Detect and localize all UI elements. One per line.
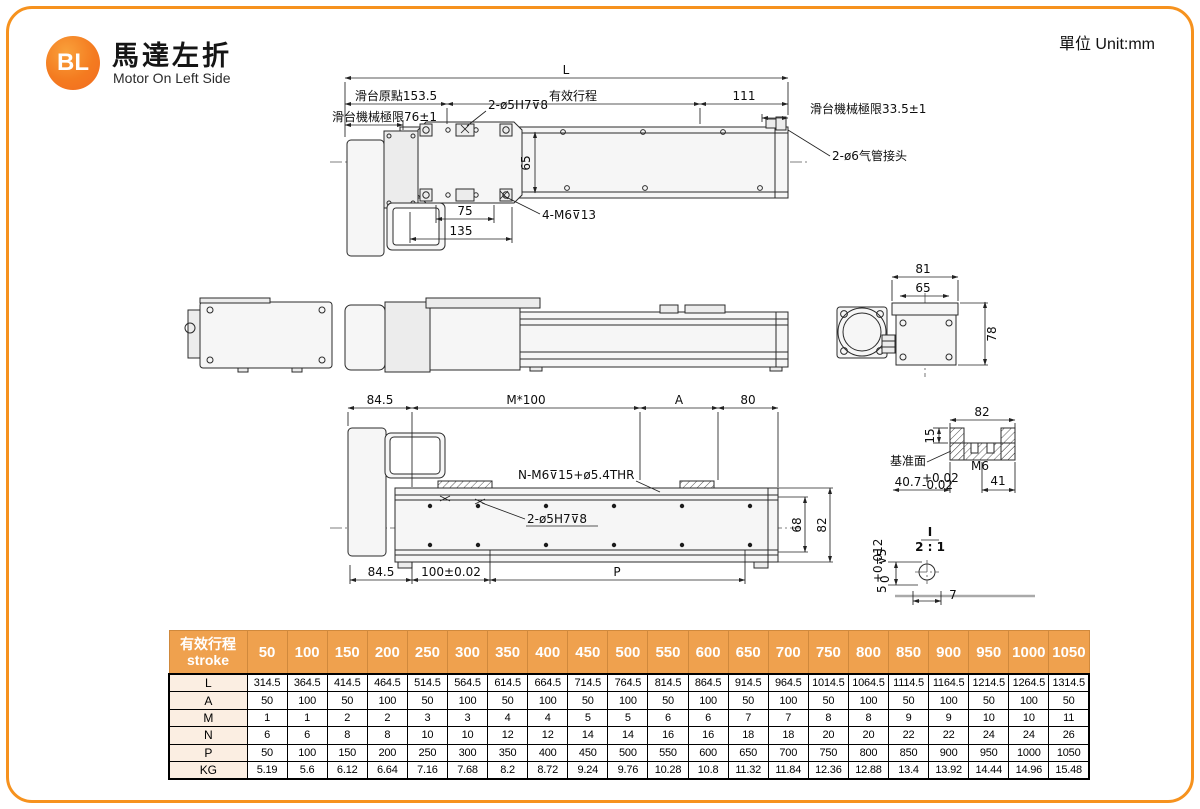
- table-cell: 1064.5: [848, 674, 888, 692]
- table-cell: 1014.5: [808, 674, 848, 692]
- table-cell: 100: [367, 692, 407, 709]
- table-cell: 5: [608, 709, 648, 726]
- table-cell: 10.28: [648, 761, 688, 779]
- table-cell: 12.88: [848, 761, 888, 779]
- table-cell: 100: [848, 692, 888, 709]
- table-cell: 6.12: [327, 761, 367, 779]
- side-elevation-geometry: [330, 428, 800, 568]
- stroke-col-header: 100: [287, 631, 327, 675]
- detail-scale: 2 : 1: [915, 540, 945, 554]
- table-cell: 850: [889, 744, 929, 761]
- table-cell: 26: [1049, 727, 1089, 744]
- table-cell: 50: [568, 692, 608, 709]
- stroke-col-header: 450: [568, 631, 608, 675]
- stroke-col-header: 500: [608, 631, 648, 675]
- table-cell: 13.92: [929, 761, 969, 779]
- table-cell: 1214.5: [969, 674, 1009, 692]
- table-cell: 6: [287, 727, 327, 744]
- table-cell: 764.5: [608, 674, 648, 692]
- table-cell: 2: [327, 709, 367, 726]
- table-cell: 814.5: [648, 674, 688, 692]
- table-cell: 8: [808, 709, 848, 726]
- table-cell: 14: [608, 727, 648, 744]
- dim-5-tol-zero: 0: [878, 575, 892, 583]
- stroke-col-header: 350: [488, 631, 528, 675]
- page-title: 馬達左折: [112, 34, 232, 73]
- stroke-col-header: 550: [648, 631, 688, 675]
- table-cell: 400: [528, 744, 568, 761]
- table-cell: 664.5: [528, 674, 568, 692]
- table-cell: 564.5: [447, 674, 487, 692]
- table-cell: 8.72: [528, 761, 568, 779]
- table-cell: 650: [728, 744, 768, 761]
- plan-view-drawing: L 滑台原點153.5 有效行程 111 滑台機械極限76±1 滑台機械極限33…: [330, 62, 1130, 260]
- stroke-col-header: 900: [929, 631, 969, 675]
- table-cell: 50: [247, 744, 287, 761]
- datum-label: 基准面: [890, 454, 926, 468]
- table-cell: 8: [848, 709, 888, 726]
- dim-7: 7: [949, 588, 957, 602]
- dim-41: 41: [990, 474, 1005, 488]
- motor-top-view: [185, 298, 332, 372]
- table-cell: 950: [969, 744, 1009, 761]
- table-cell: 1164.5: [929, 674, 969, 692]
- row-label-N: N: [169, 727, 247, 744]
- table-cell: 700: [768, 744, 808, 761]
- page-subtitle: Motor On Left Side: [113, 70, 231, 86]
- table-cell: 9.76: [608, 761, 648, 779]
- table-cell: 22: [929, 727, 969, 744]
- table-cell: 500: [608, 744, 648, 761]
- table-cell: 12: [488, 727, 528, 744]
- table-cell: 11: [1049, 709, 1089, 726]
- table-cell: 50: [407, 692, 447, 709]
- stroke-col-header: 650: [728, 631, 768, 675]
- stroke-col-header: 600: [688, 631, 728, 675]
- table-cell: 50: [969, 692, 1009, 709]
- table-cell: 15.48: [1049, 761, 1089, 779]
- table-cell: 364.5: [287, 674, 327, 692]
- datasheet-page: BL 馬達左折 Motor On Left Side 單位 Unit:mm: [0, 0, 1200, 809]
- table-cell: 20: [848, 727, 888, 744]
- dim-845-bottom: 84.5: [368, 565, 395, 579]
- table-row-A: A501005010050100501005010050100501005010…: [169, 692, 1089, 709]
- table-cell: 600: [688, 744, 728, 761]
- dim-80: 80: [740, 395, 755, 407]
- dim-15: 15: [923, 428, 937, 443]
- dim-M6: M6: [971, 459, 989, 473]
- table-cell: 14: [568, 727, 608, 744]
- stroke-col-header: 750: [808, 631, 848, 675]
- table-cell: 100: [528, 692, 568, 709]
- table-cell: 6: [688, 709, 728, 726]
- row-label-KG: KG: [169, 761, 247, 779]
- stroke-header-label: 有效行程stroke: [169, 631, 247, 675]
- dim-slide-origin: 滑台原點153.5: [355, 88, 437, 103]
- row-label-A: A: [169, 692, 247, 709]
- dim-82-cross: 82: [974, 405, 989, 419]
- stroke-col-header: 200: [367, 631, 407, 675]
- dim-L: L: [563, 63, 570, 77]
- table-cell: 12: [528, 727, 568, 744]
- table-cell: 1050: [1049, 744, 1089, 761]
- m6-holes-label: 4-M6⊽13: [542, 208, 596, 222]
- dim-135: 135: [450, 224, 473, 238]
- table-cell: 714.5: [568, 674, 608, 692]
- dowel-holes-label-side: 2-ø5H7⊽8: [527, 512, 587, 526]
- table-cell: 22: [889, 727, 929, 744]
- table-cell: 7.16: [407, 761, 447, 779]
- table-cell: 6: [247, 727, 287, 744]
- stroke-col-header: 700: [768, 631, 808, 675]
- table-cell: 414.5: [327, 674, 367, 692]
- table-cell: 464.5: [367, 674, 407, 692]
- table-cell: 100: [688, 692, 728, 709]
- motor-body-plan: [347, 140, 384, 256]
- thread-holes-label: N-M6⊽15+ø5.4THR: [518, 468, 635, 482]
- stroke-col-header: 250: [407, 631, 447, 675]
- table-cell: 514.5: [407, 674, 447, 692]
- table-cell: 100: [287, 744, 327, 761]
- detail-label: I: [928, 525, 932, 539]
- table-cell: 10: [969, 709, 1009, 726]
- table-cell: 864.5: [688, 674, 728, 692]
- plan-geometry: [330, 117, 808, 256]
- table-cell: 1: [247, 709, 287, 726]
- motor-body-side: [345, 305, 385, 370]
- end-top-plate: [892, 303, 958, 315]
- table-cell: 5.19: [247, 761, 287, 779]
- dim-407-tol-minus: -0.02: [922, 478, 953, 492]
- model-badge: BL: [46, 36, 100, 90]
- cross-section-view: 82 15 基准面 M6 41 40.7 +0.02 -0.02: [890, 405, 1015, 493]
- table-cell: 1264.5: [1009, 674, 1049, 692]
- table-cell: 16: [688, 727, 728, 744]
- table-cell: 8: [367, 727, 407, 744]
- dim-78: 78: [985, 326, 999, 341]
- dim-effective-stroke: 有效行程: [549, 88, 597, 103]
- dim-407: 40.7: [895, 475, 922, 489]
- table-cell: 8.2: [488, 761, 528, 779]
- table-row-P: P501001502002503003504004505005506006507…: [169, 744, 1089, 761]
- table-cell: 14.96: [1009, 761, 1049, 779]
- end-view: 81 65 78: [837, 262, 999, 377]
- table-cell: 314.5: [247, 674, 287, 692]
- terminal-block: [882, 335, 895, 353]
- stroke-col-header: 300: [447, 631, 487, 675]
- table-cell: 9: [889, 709, 929, 726]
- table-cell: 20: [808, 727, 848, 744]
- table-cell: 50: [889, 692, 929, 709]
- table-cell: 100: [287, 692, 327, 709]
- dim-limit-right: 滑台機械極限33.5±1: [810, 101, 926, 116]
- table-cell: 300: [447, 744, 487, 761]
- model-badge-text: BL: [57, 49, 89, 77]
- table-cell: 750: [808, 744, 848, 761]
- table-cell: 50: [808, 692, 848, 709]
- table-cell: 200: [367, 744, 407, 761]
- table-cell: 6.64: [367, 761, 407, 779]
- air-fitting-label: 2-ø6气管接头: [832, 148, 907, 163]
- row-label-M: M: [169, 709, 247, 726]
- table-cell: 250: [407, 744, 447, 761]
- table-row-KG: KG5.195.66.126.647.167.688.28.729.249.76…: [169, 761, 1089, 779]
- table-cell: 2: [367, 709, 407, 726]
- table-cell: 50: [488, 692, 528, 709]
- dowel-holes-label: 2-ø5H7⊽8: [488, 98, 548, 112]
- dim-82-side: 82: [815, 517, 829, 532]
- dim-pitch: M*100: [506, 395, 545, 407]
- carriage-plate: [426, 298, 540, 308]
- table-cell: 50: [247, 692, 287, 709]
- table-cell: 4: [488, 709, 528, 726]
- stroke-col-header: 50: [247, 631, 287, 675]
- table-cell: 3: [447, 709, 487, 726]
- table-cell: 7.68: [447, 761, 487, 779]
- table-row-N: N66881010121214141616181820202222242426: [169, 727, 1089, 744]
- table-cell: 100: [608, 692, 648, 709]
- row-label-L: L: [169, 674, 247, 692]
- dim-75: 75: [457, 204, 472, 218]
- table-cell: 1000: [1009, 744, 1049, 761]
- carriage-pad-2: [680, 481, 714, 488]
- table-cell: 11.32: [728, 761, 768, 779]
- table-cell: 10: [1009, 709, 1049, 726]
- stroke-col-header: 1050: [1049, 631, 1089, 675]
- table-cell: 7: [768, 709, 808, 726]
- dim-845-top: 84.5: [367, 395, 394, 407]
- table-cell: 550: [648, 744, 688, 761]
- row-label-P: P: [169, 744, 247, 761]
- table-cell: 24: [1009, 727, 1049, 744]
- table-cell: 614.5: [488, 674, 528, 692]
- table-cell: 9.24: [568, 761, 608, 779]
- table-cell: 11.84: [768, 761, 808, 779]
- dim-limit-left: 滑台機械極限76±1: [332, 109, 437, 124]
- table-cell: 8: [327, 727, 367, 744]
- dim-111: 111: [733, 89, 756, 103]
- table-cell: 6: [648, 709, 688, 726]
- table-cell: 18: [728, 727, 768, 744]
- table-cell: 24: [969, 727, 1009, 744]
- table-cell: 9: [929, 709, 969, 726]
- end-body: [896, 315, 956, 365]
- table-cell: 1: [287, 709, 327, 726]
- motor-flange: [837, 307, 887, 358]
- table-cell: 964.5: [768, 674, 808, 692]
- table-cell: 50: [327, 692, 367, 709]
- lower-views-drawing: 84.5 M*100 A 80 N-M6⊽15+ø5.4THR 2-ø5H7⊽8…: [330, 395, 1190, 610]
- table-cell: 5.6: [287, 761, 327, 779]
- table-cell: 18: [768, 727, 808, 744]
- stroke-col-header: 1000: [1009, 631, 1049, 675]
- dim-81: 81: [915, 262, 930, 276]
- table-cell: 13.4: [889, 761, 929, 779]
- dim-A: A: [675, 395, 684, 407]
- table-cell: 800: [848, 744, 888, 761]
- dim-100: 100±0.02: [421, 565, 481, 579]
- table-cell: 3: [407, 709, 447, 726]
- table-cell: 4: [528, 709, 568, 726]
- actuator-side-view-small: [345, 298, 788, 372]
- middle-views-drawing: 81 65 78: [180, 255, 1020, 390]
- stroke-col-header: 950: [969, 631, 1009, 675]
- table-cell: 14.44: [969, 761, 1009, 779]
- dim-P: P: [613, 565, 620, 579]
- table-cell: 900: [929, 744, 969, 761]
- stroke-table-container: 有效行程stroke501001502002503003504004505005…: [168, 630, 1090, 780]
- table-row-L: L314.5364.5414.5464.5514.5564.5614.5664.…: [169, 674, 1089, 692]
- table-cell: 16: [648, 727, 688, 744]
- table-cell: 5: [568, 709, 608, 726]
- table-cell: 100: [447, 692, 487, 709]
- stroke-col-header: 150: [327, 631, 367, 675]
- stroke-col-header: 800: [848, 631, 888, 675]
- motor-bracket: [348, 428, 386, 556]
- table-cell: 150: [327, 744, 367, 761]
- stroke-col-header: 400: [528, 631, 568, 675]
- table-cell: 1114.5: [889, 674, 929, 692]
- table-cell: 1314.5: [1049, 674, 1089, 692]
- table-cell: 50: [648, 692, 688, 709]
- unit-label: 單位 Unit:mm: [1059, 30, 1155, 54]
- dim-68: 68: [790, 517, 804, 532]
- table-cell: 914.5: [728, 674, 768, 692]
- table-cell: 10.8: [688, 761, 728, 779]
- dim-65-end: 65: [915, 281, 930, 295]
- table-cell: 10: [447, 727, 487, 744]
- dim-65: 65: [519, 155, 533, 170]
- table-row-M: M112233445566778899101011: [169, 709, 1089, 726]
- t-slot-2: [987, 443, 994, 453]
- table-cell: 100: [768, 692, 808, 709]
- detail-view-I: I 2 : 1 5 +0.012 0 ⊽5 7: [871, 525, 1035, 605]
- table-cell: 12.36: [808, 761, 848, 779]
- table-cell: 350: [488, 744, 528, 761]
- dim-5: 5: [875, 585, 889, 593]
- dim-5-depth: ⊽5: [875, 549, 889, 565]
- stroke-table: 有效行程stroke501001502002503003504004505005…: [168, 630, 1090, 780]
- table-cell: 50: [1049, 692, 1089, 709]
- carriage-pad: [438, 481, 492, 488]
- t-slot: [971, 443, 978, 453]
- stroke-col-header: 850: [889, 631, 929, 675]
- table-cell: 7: [728, 709, 768, 726]
- table-cell: 50: [728, 692, 768, 709]
- table-cell: 10: [407, 727, 447, 744]
- table-cell: 100: [1009, 692, 1049, 709]
- table-cell: 100: [929, 692, 969, 709]
- table-cell: 450: [568, 744, 608, 761]
